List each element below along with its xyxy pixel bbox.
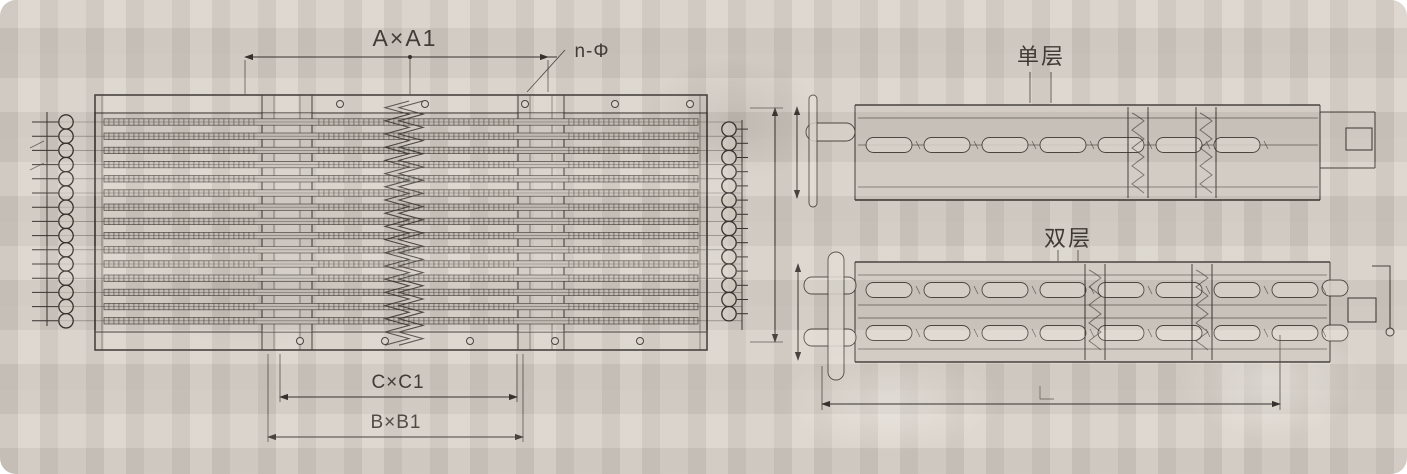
drawing-paper: A×A1 n-Φ C×C1 [0,0,1407,474]
dimension-a: A×A1 [245,25,557,94]
dim-a-label: A×A1 [373,25,438,51]
dimension-c: C×C1 [280,354,517,402]
single-layer-callout: 单层 [1017,44,1065,103]
double-layer-view: 双层 [798,226,1394,410]
inlet-pipe [809,95,817,207]
u-bend [1322,325,1348,341]
hole-callout-label: n-Φ [574,41,609,62]
dimension-b: B×B1 [268,354,523,442]
front-view: A×A1 n-Φ C×C1 [30,25,783,442]
hole-callout: n-Φ [527,41,610,92]
screenshot: A×A1 n-Φ C×C1 [0,0,1407,474]
drawing-canvas: A×A1 n-Φ C×C1 [0,0,1407,474]
single-layer-label: 单层 [1017,44,1065,69]
single-layer-view: 单层 [797,44,1375,207]
double-layer-label: 双层 [1044,226,1092,251]
double-layer-callout: 双层 [1044,226,1092,261]
outlet-fitting [1348,298,1376,322]
dim-b-label: B×B1 [370,412,421,433]
left-return-bends [32,115,73,328]
dimension-height [750,108,783,342]
dim-c-label: C×C1 [371,372,424,393]
left-header [828,252,844,380]
